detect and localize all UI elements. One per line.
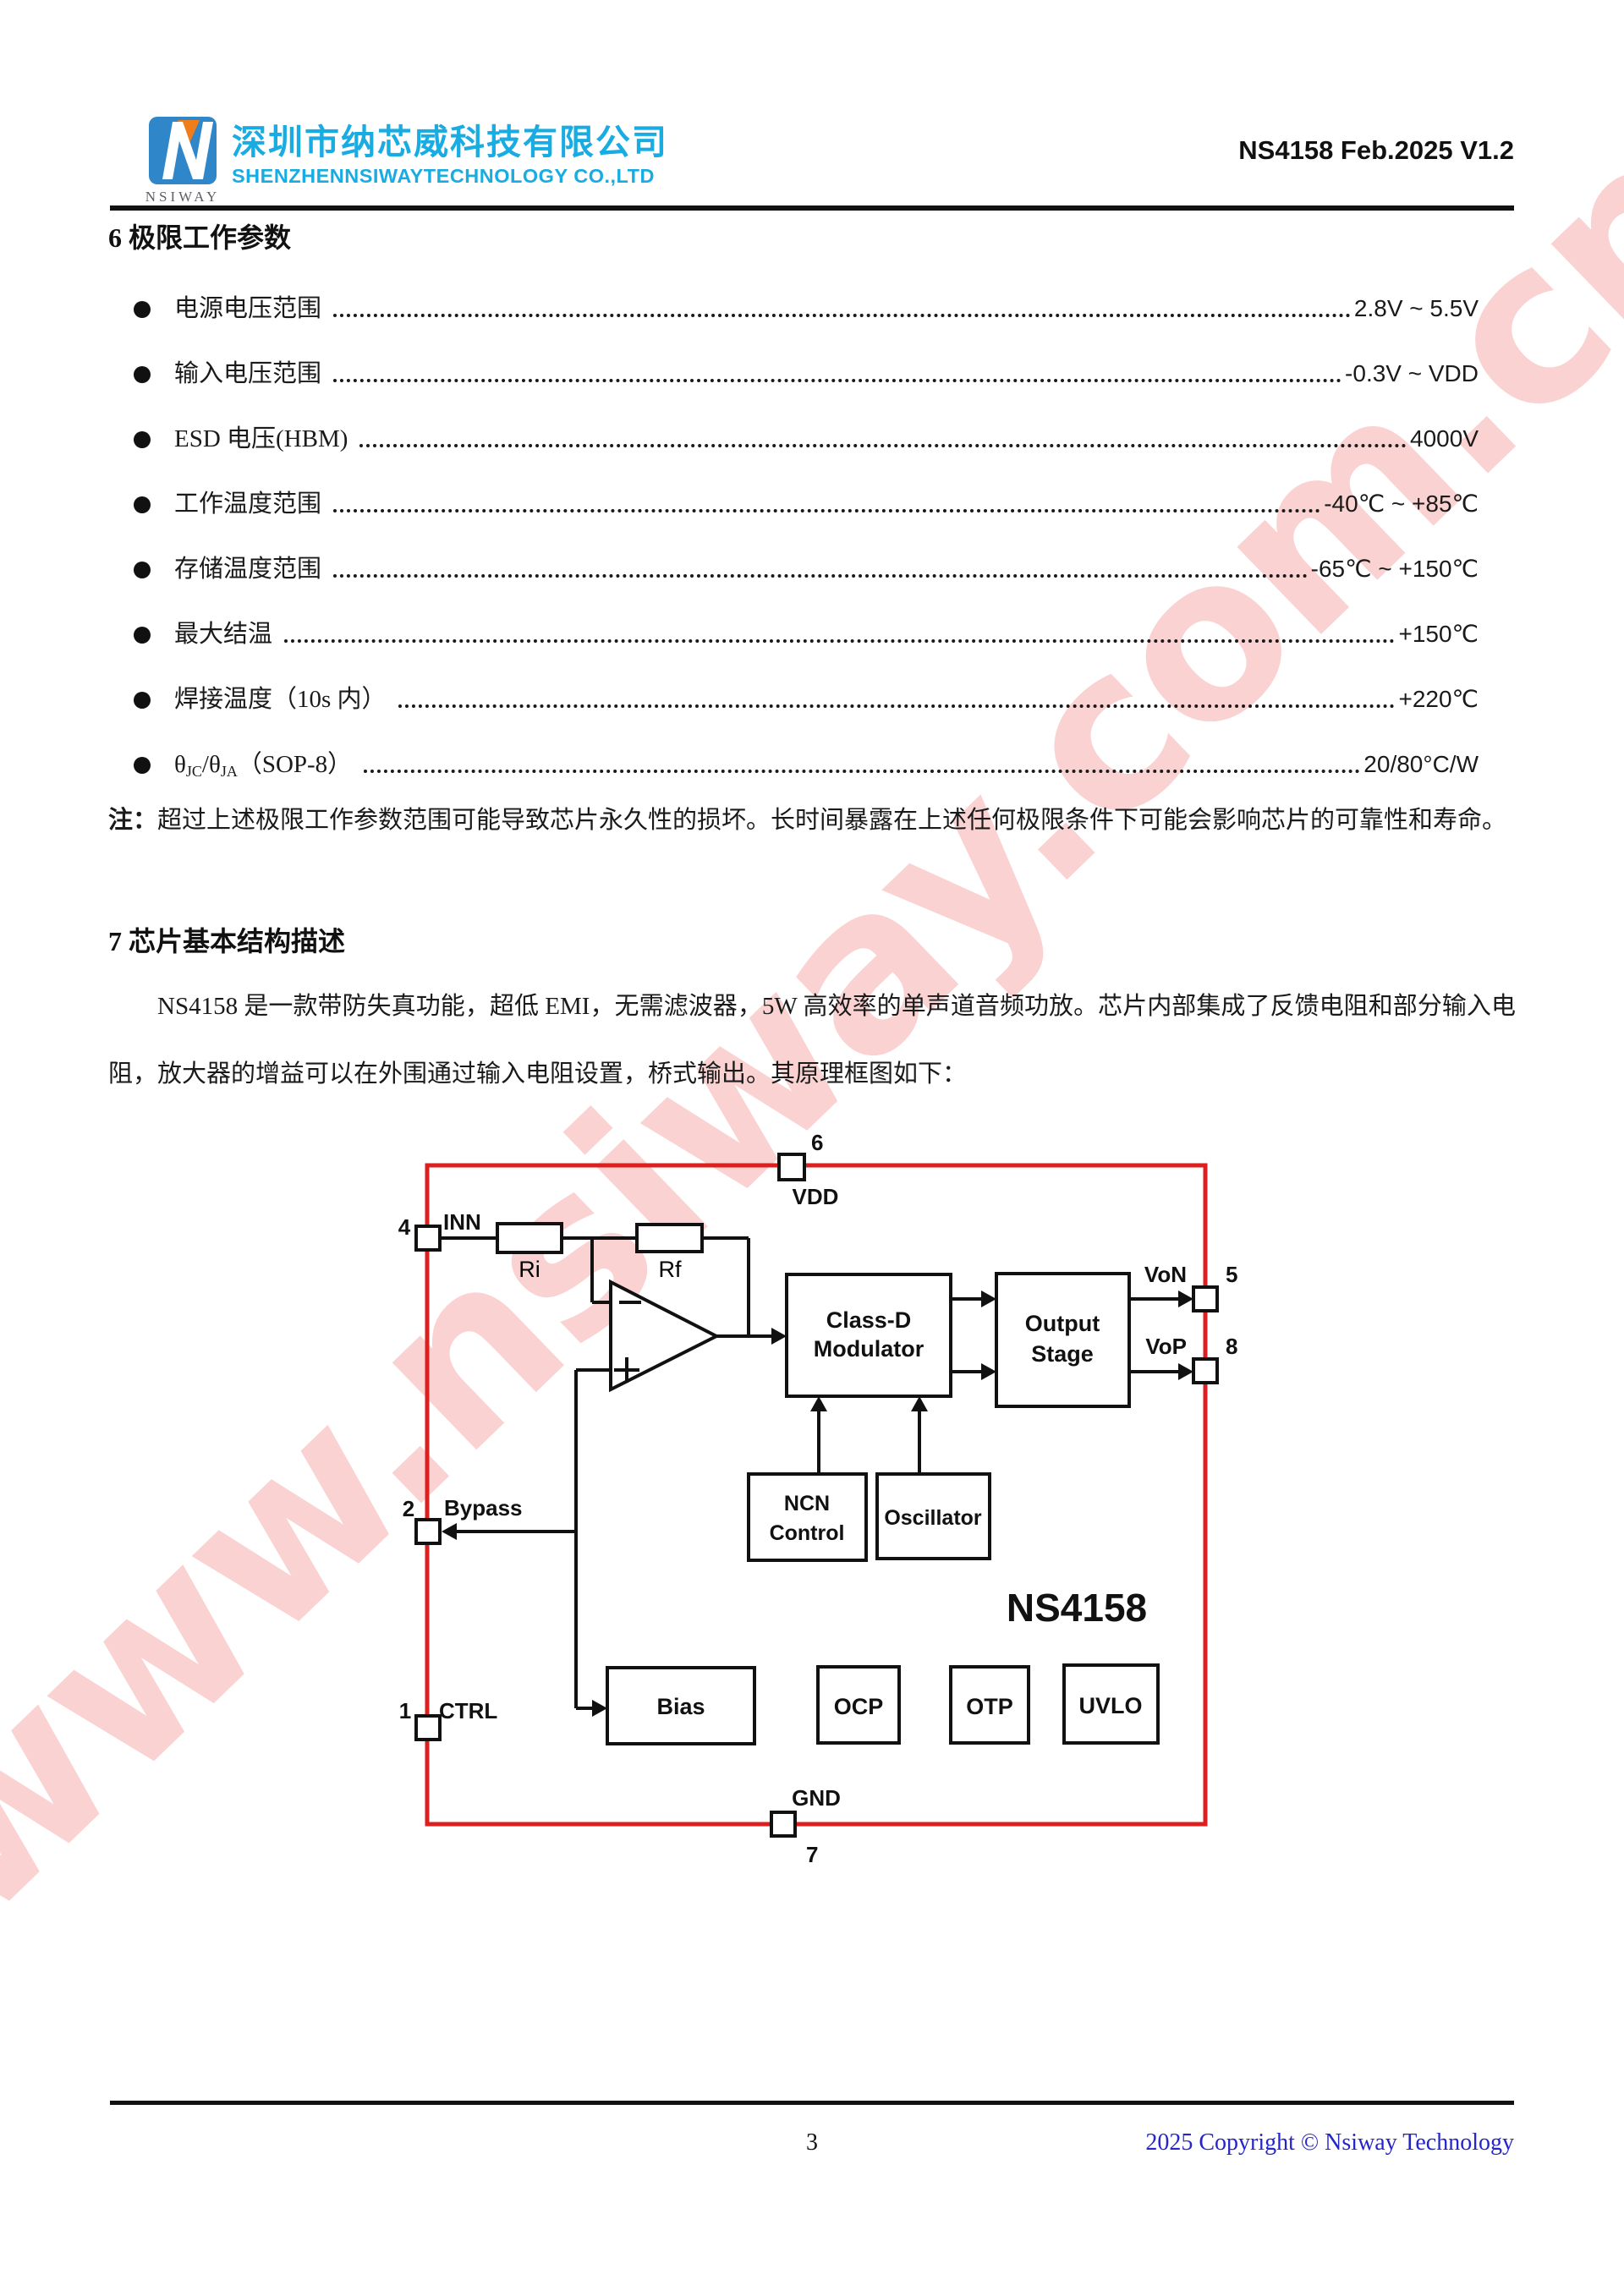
dotted-leader <box>333 508 1320 512</box>
resistor-ri <box>497 1224 562 1252</box>
section6-title: 6 极限工作参数 <box>108 216 291 255</box>
company-name-en: SHENZHENNSIWAYTECHNOLOGY CO.,LTD <box>232 165 668 188</box>
classd-label-2: Modulator <box>814 1336 924 1362</box>
pin1-number: 1 <box>399 1698 411 1723</box>
output-stage-block <box>996 1274 1129 1406</box>
pin5-name: VoN <box>1144 1262 1187 1287</box>
pin8-name: VoP <box>1145 1334 1187 1359</box>
dotted-leader <box>333 573 1308 578</box>
limit-value: -65℃ ~ +150℃ <box>1311 557 1479 584</box>
limit-value: 2.8V ~ 5.5V <box>1354 297 1479 324</box>
pin7-name: GND <box>792 1785 841 1811</box>
chip-name-label: NS4158 <box>1007 1586 1147 1630</box>
theta-symbol: /θ <box>202 751 221 778</box>
dotted-leader <box>359 443 1407 447</box>
dotted-leader <box>364 769 1360 773</box>
uvlo-label: UVLO <box>1078 1693 1142 1718</box>
classd-label-1: Class-D <box>826 1307 912 1333</box>
classd-modulator-block <box>787 1274 951 1396</box>
ncn-label-1: NCN <box>784 1492 830 1515</box>
output-label-1: Output <box>1025 1311 1100 1336</box>
section7-paragraph: NS4158 是一款带防失真功能，超低 EMI，无需滤波器，5W 高效率的单声道… <box>108 973 1516 1108</box>
pin2-name: Bypass <box>444 1495 523 1521</box>
package-suffix: （SOP-8） <box>238 751 352 778</box>
ncn-label-2: Control <box>770 1521 845 1545</box>
company-name-block: 深圳市纳芯威科技有限公司 SHENZHENNSIWAYTECHNOLOGY CO… <box>232 123 668 188</box>
list-item: 存储温度范围 -65℃ ~ +150℃ <box>108 519 1479 584</box>
document-reference: NS4158 Feb.2025 V1.2 <box>1238 135 1514 166</box>
dotted-leader <box>398 704 1396 708</box>
output-label-2: Stage <box>1031 1341 1094 1367</box>
company-name-cn: 深圳市纳芯威科技有限公司 <box>232 123 668 162</box>
limits-note: 注：超过上述极限工作参数范围可能导致芯片永久性的损坏。长时间暴露在上述任何极限条… <box>108 786 1516 854</box>
limits-list: 电源电压范围 2.8V ~ 5.5V 输入电压范围 -0.3V ~ VDD ES… <box>108 259 1479 780</box>
limit-label: 存储温度范围 <box>174 557 321 584</box>
pin2-number: 2 <box>403 1496 414 1521</box>
pin1-name: CTRL <box>439 1698 497 1723</box>
pin7-number: 7 <box>806 1842 818 1867</box>
note-body: 超过上述极限工作参数范围可能导致芯片永久性的损坏。长时间暴露在上述任何极限条件下… <box>157 807 1506 834</box>
theta-symbol: θ <box>174 751 186 778</box>
copyright-text: 2025 Copyright © Nsiway Technology <box>1145 2129 1514 2156</box>
limit-label: θJC/θJA（SOP-8） <box>174 753 352 780</box>
pin8-number: 8 <box>1226 1334 1237 1359</box>
list-item: 最大结温 +150℃ <box>108 584 1479 649</box>
limit-label: ESD 电压(HBM) <box>174 427 348 454</box>
ocp-label: OCP <box>834 1694 884 1719</box>
list-item: 焊接温度（10s 内） +220℃ <box>108 649 1479 715</box>
pin-4-inn <box>416 1226 440 1250</box>
otp-label: OTP <box>966 1694 1013 1719</box>
datasheet-page: www.nsiway.com.cn NSIWAY 深圳市纳芯威科技有限公司 SH… <box>0 0 1624 2296</box>
limit-label: 最大结温 <box>174 622 272 649</box>
limit-value: -40℃ ~ +85℃ <box>1324 492 1479 519</box>
theta-subscript: JA <box>221 763 238 780</box>
bullet-icon <box>134 757 151 774</box>
pin6-number: 6 <box>811 1133 823 1155</box>
pin-2-bypass <box>416 1520 440 1543</box>
note-prefix: 注： <box>108 807 157 834</box>
limit-value: 4000V <box>1410 427 1479 454</box>
list-item: 电源电压范围 2.8V ~ 5.5V <box>108 259 1479 324</box>
list-item: 工作温度范围 -40℃ ~ +85℃ <box>108 454 1479 519</box>
limit-label: 输入电压范围 <box>174 362 321 389</box>
pin-5-von <box>1193 1287 1217 1311</box>
list-item: 输入电压范围 -0.3V ~ VDD <box>108 324 1479 389</box>
logo-brand-text: NSIWAY <box>144 189 222 205</box>
section7-title: 7 芯片基本结构描述 <box>108 920 345 959</box>
limit-value: 20/80°C/W <box>1363 753 1479 780</box>
pin-8-vop <box>1193 1359 1217 1383</box>
bullet-icon <box>134 692 151 709</box>
bullet-icon <box>134 496 151 513</box>
ri-label: Ri <box>518 1257 540 1282</box>
block-diagram: Ri Rf Class-D Modulator Output Stage NCN… <box>372 1133 1311 1911</box>
list-item: ESD 电压(HBM) 4000V <box>108 389 1479 454</box>
bullet-icon <box>134 627 151 644</box>
list-item: θJC/θJA（SOP-8） 20/80°C/W <box>108 715 1479 780</box>
nsiway-logo-icon <box>147 115 218 186</box>
pin-7-gnd <box>771 1812 795 1836</box>
limit-value: +150℃ <box>1398 622 1479 649</box>
pin5-number: 5 <box>1226 1262 1237 1287</box>
ncn-control-block <box>749 1474 866 1560</box>
rf-label: Rf <box>659 1257 682 1282</box>
dotted-leader <box>333 313 1351 317</box>
limit-label: 焊接温度（10s 内） <box>174 688 387 715</box>
header-divider <box>110 205 1514 211</box>
limit-label: 电源电压范围 <box>174 297 321 324</box>
pin6-name: VDD <box>793 1184 839 1209</box>
pin4-name: INN <box>443 1209 481 1235</box>
limit-value: +220℃ <box>1398 688 1479 715</box>
bullet-icon <box>134 431 151 448</box>
company-logo: NSIWAY <box>144 115 222 205</box>
footer-divider <box>110 2101 1514 2105</box>
pin4-number: 4 <box>398 1214 411 1240</box>
bullet-icon <box>134 301 151 318</box>
pin-1-ctrl <box>416 1716 440 1740</box>
limit-label: 工作温度范围 <box>174 492 321 519</box>
bullet-icon <box>134 366 151 383</box>
dotted-leader <box>284 638 1395 643</box>
oscillator-label: Oscillator <box>884 1506 982 1530</box>
resistor-rf <box>637 1225 702 1252</box>
pin-6-vdd <box>779 1154 804 1180</box>
bias-label: Bias <box>656 1694 705 1719</box>
limit-value: -0.3V ~ VDD <box>1345 362 1479 389</box>
theta-subscript: JC <box>186 763 202 780</box>
dotted-leader <box>333 378 1341 382</box>
bullet-icon <box>134 562 151 578</box>
